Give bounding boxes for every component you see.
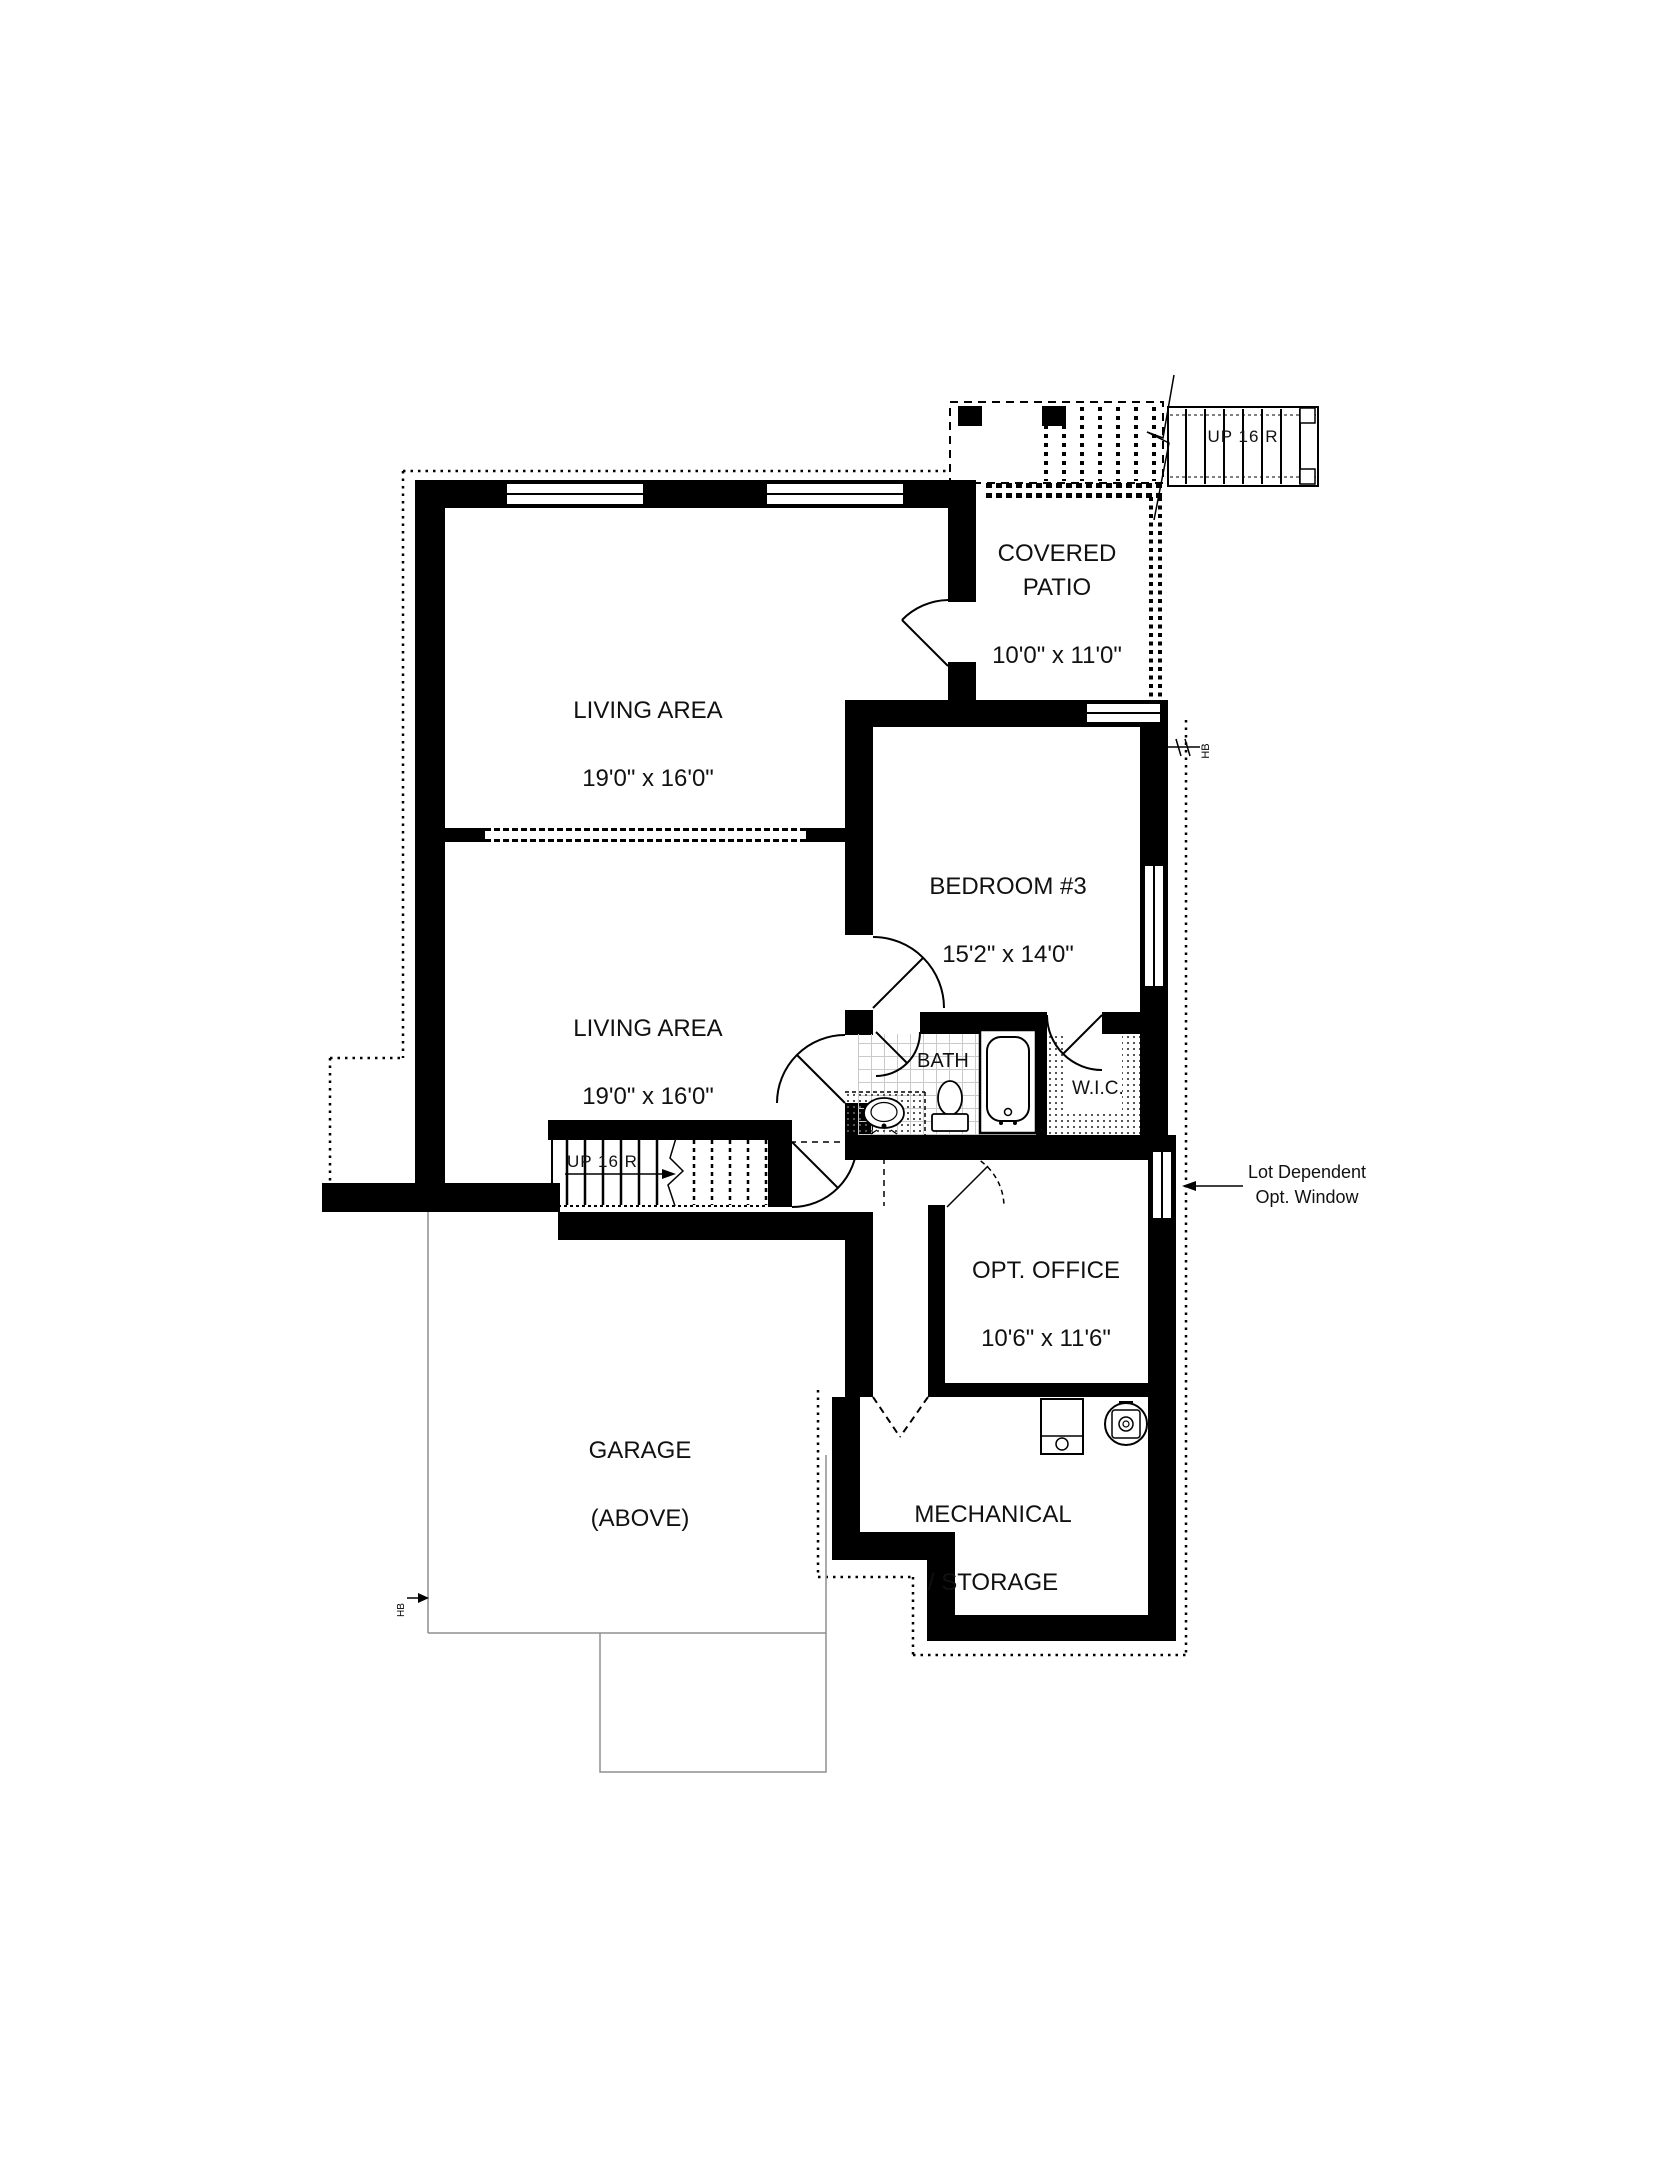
exterior-stairs <box>1147 375 1318 520</box>
wall-wic-right <box>1140 1015 1168 1140</box>
room-label-living-area-1: LIVING AREA 19'0" x 16'0" <box>488 660 808 830</box>
wall-tub-partition <box>1036 1034 1047 1135</box>
arrowhead <box>662 1169 676 1179</box>
room-name: MECHANICAL <box>833 1498 1153 1532</box>
note-line-2: Opt. Window <box>1248 1185 1366 1210</box>
wall-vestibule-left <box>845 1240 873 1397</box>
wall-mech-top-stub <box>845 1383 873 1397</box>
room-label-garage: GARAGE (ABOVE) <box>480 1400 800 1570</box>
window-living1-left <box>505 482 645 506</box>
opt-window-arrow <box>1182 1181 1243 1191</box>
wall-divider-stub-left <box>445 828 485 842</box>
room-name: BEDROOM #3 <box>848 870 1168 904</box>
room-label-covered-patio: COVERED PATIO 10'0" x 11'0" <box>982 503 1132 707</box>
room-subtitle: / STORAGE <box>833 1566 1153 1600</box>
hose-bib-label: HB <box>1200 743 1212 758</box>
door-mechanical-double <box>873 1397 928 1437</box>
patio-post <box>958 406 982 426</box>
arrowhead <box>418 1593 429 1603</box>
wall-bedroom-left-stub <box>845 1010 873 1035</box>
room-label-wic: W.I.C. <box>1072 1078 1124 1100</box>
room-subtitle: (ABOVE) <box>480 1502 800 1536</box>
room-label-bath: BATH <box>917 1050 969 1073</box>
interior-stairs-label: UP 16 R <box>567 1152 638 1172</box>
room-name: GARAGE <box>480 1434 800 1468</box>
stair-newel-post <box>1300 408 1315 423</box>
linework-overlay: HB HB <box>0 0 1669 2160</box>
door-patio <box>902 600 948 666</box>
wall-under-stairs <box>558 1212 873 1240</box>
room-label-mechanical: MECHANICAL / STORAGE <box>833 1464 1153 1634</box>
room-name: LIVING AREA <box>488 1012 808 1046</box>
wall-bath-top <box>920 1012 1047 1034</box>
room-dims: 15'2" x 14'0" <box>848 938 1168 972</box>
opt-window-note: Lot Dependent Opt. Window <box>1248 1160 1366 1210</box>
room-dims: 19'0" x 16'0" <box>488 1080 808 1114</box>
wall-patio-left-upper <box>948 480 976 602</box>
bath-vanity-counter <box>845 1092 925 1135</box>
hose-bib-right: HB <box>1168 739 1212 759</box>
window-living1-right <box>765 482 905 506</box>
wall-left <box>415 508 445 1183</box>
room-dims: 10'6" x 11'6" <box>886 1322 1206 1356</box>
patio-right-screen <box>1151 497 1160 698</box>
arrowhead <box>1182 1181 1196 1191</box>
hose-bib-left: HB <box>396 1593 429 1617</box>
stair-newel-post <box>1300 469 1315 484</box>
patio-edge-band <box>986 483 1163 498</box>
hose-bib-label: HB <box>396 1603 407 1617</box>
water-heater <box>1105 1402 1147 1445</box>
room-label-bedroom-3: BEDROOM #3 15'2" x 14'0" <box>848 836 1168 1006</box>
floor-plan-sheet: HB HB COVERED PATIO 10'0" x 11'0" LIVING… <box>0 0 1669 2160</box>
window-opt-lot-dependent <box>1151 1150 1173 1220</box>
break-line <box>1147 375 1174 520</box>
room-dims: 19'0" x 16'0" <box>488 762 808 796</box>
optional-wall-divider <box>485 828 806 842</box>
room-name: COVERED PATIO <box>982 537 1132 605</box>
room-name: OPT. OFFICE <box>886 1254 1206 1288</box>
room-label-living-area-2: LIVING AREA 19'0" x 16'0" <box>488 978 808 1148</box>
note-line-1: Lot Dependent <box>1248 1160 1366 1185</box>
room-label-opt-office: OPT. OFFICE 10'6" x 11'6" <box>886 1220 1206 1390</box>
break-line <box>668 1138 683 1206</box>
exterior-stairs-label: UP 16 R <box>1208 427 1279 447</box>
wall-divider-stub-right <box>806 828 845 842</box>
room-name: LIVING AREA <box>488 694 808 728</box>
wall-bath-bottom <box>845 1135 1176 1160</box>
room-dims: 10'0" x 11'0" <box>982 639 1132 673</box>
patio-post <box>1042 406 1066 426</box>
wall-stair-right <box>768 1140 792 1207</box>
wall-bottom-left <box>322 1183 560 1212</box>
furnace <box>1041 1399 1083 1454</box>
